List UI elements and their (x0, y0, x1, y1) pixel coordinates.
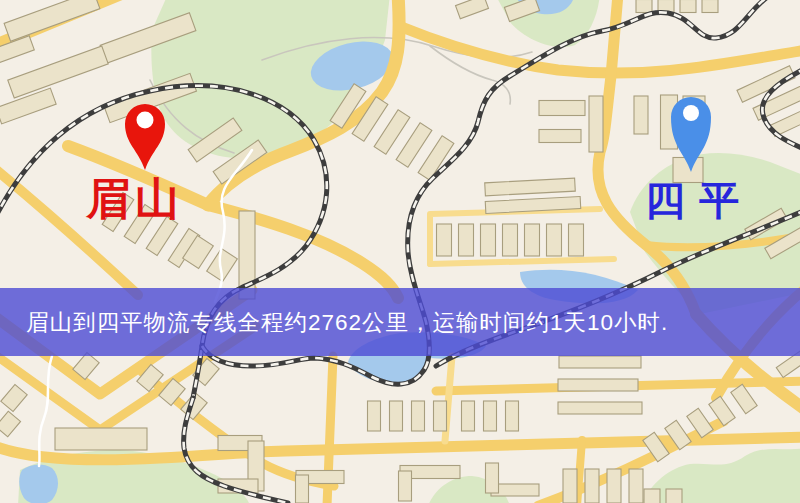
building (636, 0, 652, 13)
building (368, 401, 381, 431)
building (506, 401, 519, 431)
water-area (19, 464, 58, 503)
building (539, 101, 585, 116)
building (547, 224, 562, 256)
building (55, 428, 147, 450)
building (558, 379, 638, 391)
building (634, 96, 648, 134)
pin-hole (137, 112, 154, 129)
building (434, 401, 447, 431)
building (525, 224, 540, 256)
building (629, 469, 643, 503)
building (680, 0, 696, 13)
building (503, 224, 518, 256)
building (459, 224, 474, 256)
building (585, 469, 599, 503)
building (481, 224, 496, 256)
route-info-banner: 眉山到四平物流专线全程约2762公里，运输时间约1天10小时. (0, 288, 800, 356)
building (563, 469, 577, 503)
building (486, 463, 499, 493)
building (462, 401, 475, 431)
building (296, 475, 309, 503)
building (644, 489, 660, 503)
map-canvas[interactable] (0, 0, 800, 503)
building (702, 0, 718, 13)
building (559, 356, 641, 368)
building (484, 401, 497, 431)
building (412, 401, 425, 431)
building (569, 224, 584, 256)
building (558, 402, 642, 414)
building (539, 130, 581, 143)
building (390, 401, 403, 431)
origin-city-label: 眉山 (86, 178, 184, 222)
logistics-route-map: 眉山 四平 眉山到四平物流专线全程约2762公里，运输时间约1天10小时. (0, 0, 800, 503)
building (666, 489, 682, 503)
building (607, 469, 621, 503)
building (589, 96, 603, 152)
building (437, 224, 452, 256)
pin-hole (683, 105, 699, 121)
building (399, 471, 412, 501)
destination-city-label: 四平 (645, 181, 753, 221)
route-info-text: 眉山到四平物流专线全程约2762公里，运输时间约1天10小时. (0, 307, 668, 338)
